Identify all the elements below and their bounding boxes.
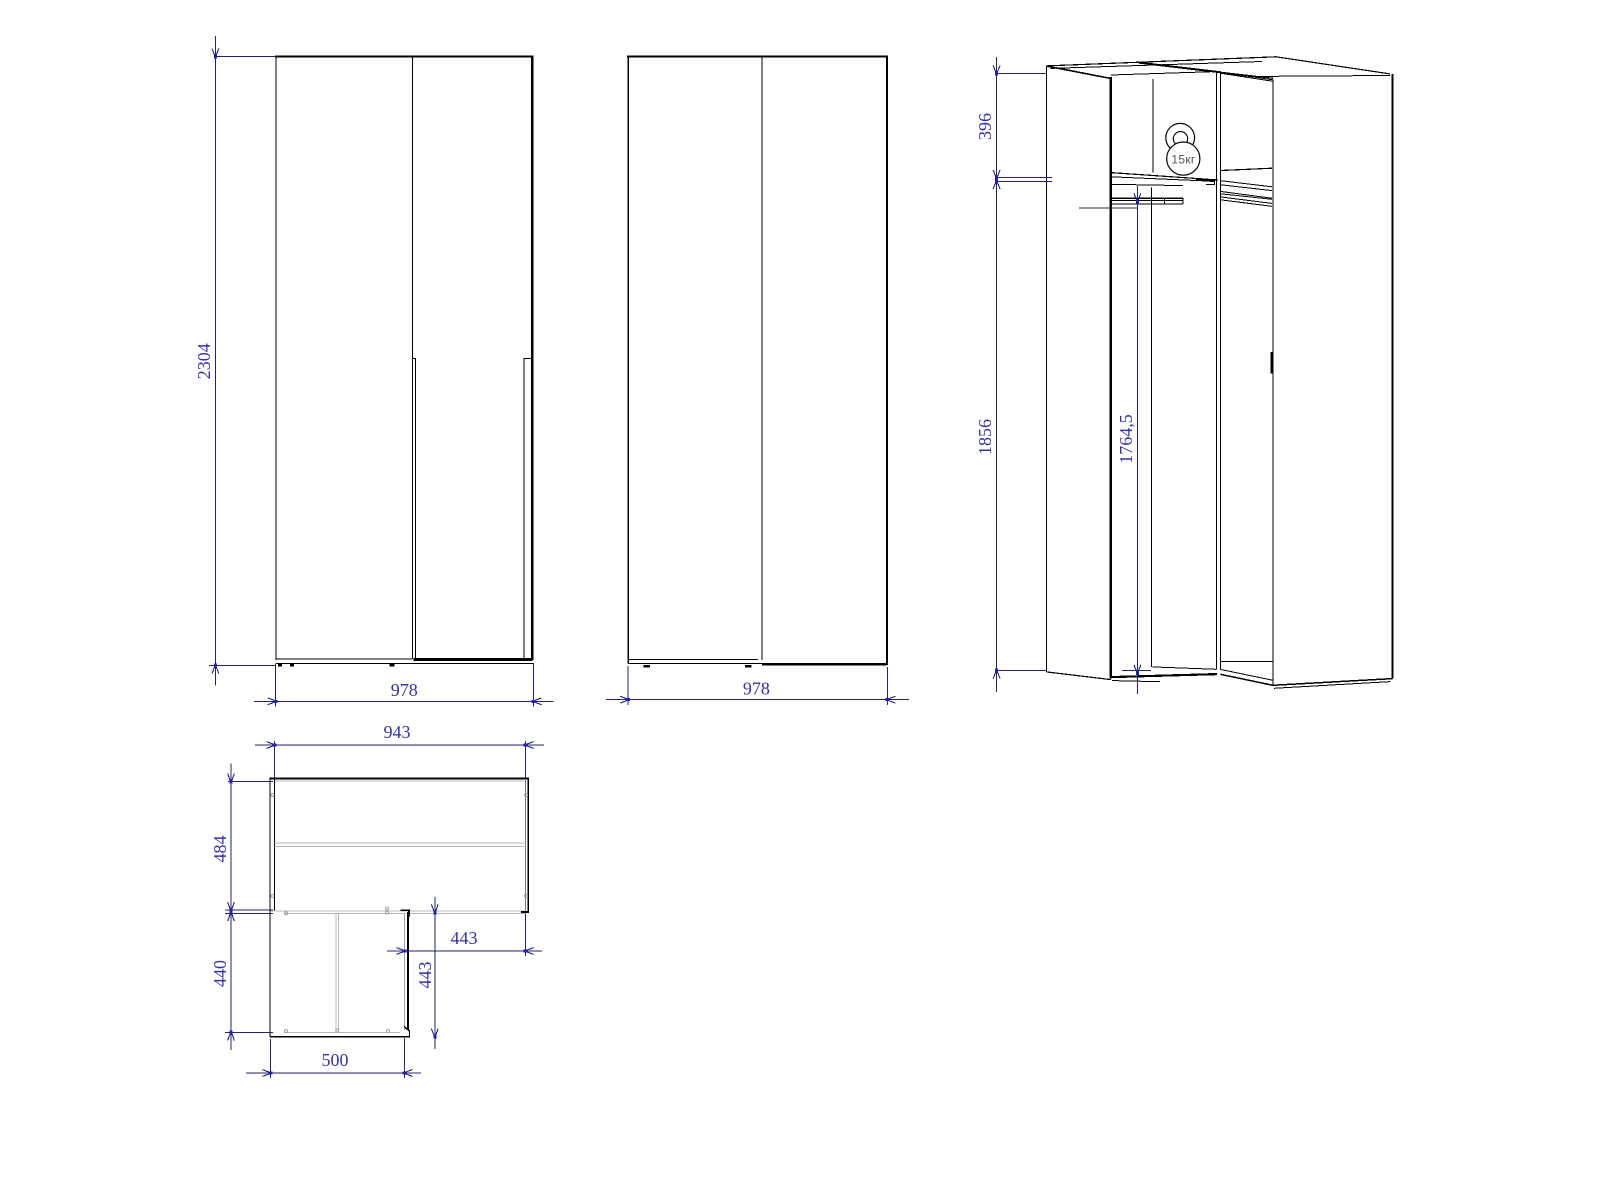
svg-text:440: 440 <box>210 960 230 987</box>
svg-text:2304: 2304 <box>194 343 214 379</box>
svg-text:978: 978 <box>391 680 418 700</box>
svg-text:443: 443 <box>451 928 478 948</box>
svg-text:500: 500 <box>322 1050 349 1070</box>
svg-text:443: 443 <box>415 962 435 989</box>
svg-text:484: 484 <box>210 836 230 863</box>
svg-text:943: 943 <box>384 722 411 742</box>
svg-text:1856: 1856 <box>975 419 995 455</box>
svg-text:1764,5: 1764,5 <box>1116 414 1136 464</box>
svg-text:396: 396 <box>975 113 995 140</box>
svg-text:978: 978 <box>743 679 770 699</box>
svg-text:15кг: 15кг <box>1171 153 1195 167</box>
